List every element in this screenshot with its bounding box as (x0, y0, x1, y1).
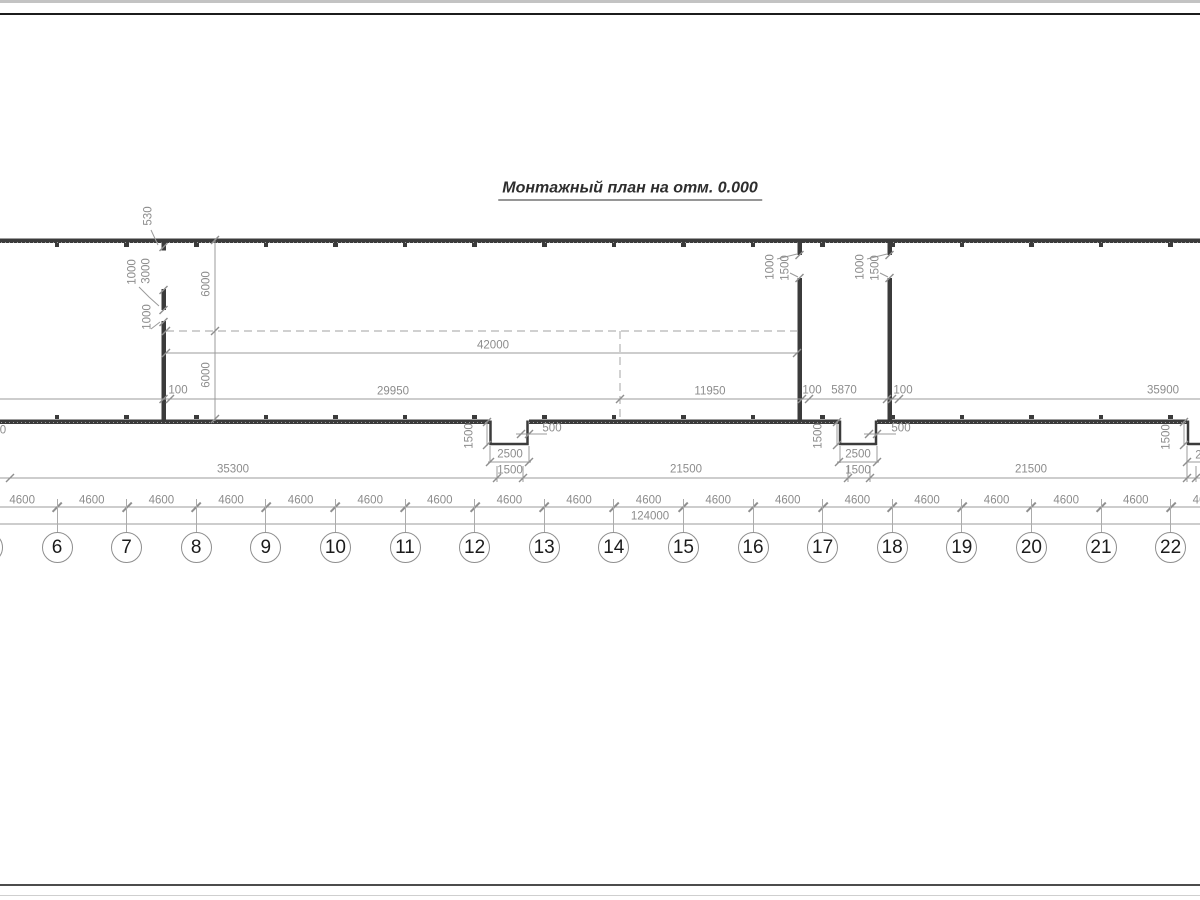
bay-dim-label: 4600 (1193, 495, 1200, 507)
wall-axis-mark (890, 415, 895, 419)
wall-axis-mark (403, 243, 408, 247)
grid-axis-bubble: 9 (250, 532, 281, 563)
dim-label: 1000 (127, 259, 139, 285)
grid-axis-number: 12 (464, 538, 485, 557)
dim-label: 2500 (1195, 450, 1200, 462)
dim-label: 35900 (1147, 385, 1179, 397)
bay-dim-label: 4600 (218, 495, 244, 507)
axis-extension-line (126, 499, 127, 532)
dim-label: 1000 (855, 254, 867, 280)
dim-label: 29950 (377, 386, 409, 398)
grid-axis-number: 17 (812, 538, 833, 557)
axis-extension-line (405, 499, 406, 532)
dim-label: 1500 (780, 255, 792, 281)
wall-axis-mark (124, 243, 129, 247)
wall-axis-mark (681, 415, 686, 419)
wall-axis-mark (960, 415, 965, 419)
grid-axis-bubble: 10 (320, 532, 351, 563)
grid-axis-number: 16 (742, 538, 763, 557)
dimension-lines (0, 230, 1200, 524)
axis-extension-line (265, 499, 266, 532)
grid-axis-bubble: 8 (181, 532, 212, 563)
wall-axis-mark (264, 243, 269, 247)
axis-extension-line (753, 499, 754, 532)
grid-axis-number: 7 (121, 538, 132, 557)
wall-axis-mark (1168, 415, 1173, 419)
wall-axis-mark (1168, 243, 1173, 247)
dim-label: 6000 (201, 362, 213, 388)
axis-extension-line (892, 499, 893, 532)
grid-axis-bubble: 16 (738, 532, 769, 563)
grid-axis-bubble: 17 (807, 532, 838, 563)
grid-axis-number: 14 (603, 538, 624, 557)
dim-label: 1500 (1161, 424, 1173, 450)
grid-axis-number: 20 (1021, 538, 1042, 557)
axis-extension-line (683, 499, 684, 532)
wall-axis-mark (751, 243, 756, 247)
bay-dim-label: 4600 (427, 495, 453, 507)
wall-axis-mark (751, 415, 756, 419)
wall-axis-mark (333, 415, 338, 419)
dim-label: 1500 (813, 423, 825, 449)
grid-axis-number: 21 (1090, 538, 1111, 557)
grid-axis-number: 9 (261, 538, 272, 557)
axis-extension-line (822, 499, 823, 532)
bay-dim-label: 4600 (357, 495, 383, 507)
grid-axis-number: 15 (673, 538, 694, 557)
dim-label: 1500 (870, 255, 882, 281)
wall-axis-mark (1029, 415, 1034, 419)
wall-axis-mark (403, 415, 408, 419)
axis-extension-line (961, 499, 962, 532)
axis-extension-line (196, 499, 197, 532)
dim-label: 1000 (765, 254, 777, 280)
wall-axis-mark (333, 243, 338, 247)
drawing-sheet: Монтажный план на отм. 0.000 (0, 0, 1200, 900)
grid-axis-bubble: 7 (111, 532, 142, 563)
bay-dim-label: 4600 (1053, 495, 1079, 507)
grid-axis-number: 8 (191, 538, 202, 557)
dim-label: 2500 (497, 449, 523, 461)
dim-label: 500 (542, 423, 561, 435)
grid-axis-bubble: 19 (946, 532, 977, 563)
axis-extension-line (1031, 499, 1032, 532)
bay-dim-label: 4600 (9, 495, 35, 507)
wall-axis-mark (542, 243, 547, 247)
pit-notches (491, 421, 1200, 445)
dim-label: 100 (168, 385, 187, 397)
axis-extension-line (544, 499, 545, 532)
bay-dim-label: 4600 (566, 495, 592, 507)
dim-label: 35300 (217, 464, 249, 476)
wall-axis-mark (890, 243, 895, 247)
dim-label: 3000 (141, 258, 153, 284)
axis-extension-line (1101, 499, 1102, 532)
bay-dim-label: 4600 (79, 495, 105, 507)
dim-label: 124000 (631, 511, 669, 523)
axis-extension-line (613, 499, 614, 532)
grid-axis-bubble: 11 (390, 532, 421, 563)
dim-label: 21500 (1015, 464, 1047, 476)
wall-axis-mark (194, 243, 199, 247)
wall-axis-mark (1029, 243, 1034, 247)
grid-axis-bubble: 18 (877, 532, 908, 563)
dim-label: 21500 (670, 464, 702, 476)
grid-axis-number: 18 (882, 538, 903, 557)
wall-axis-mark (612, 243, 617, 247)
bay-dim-label: 4600 (497, 495, 523, 507)
bay-dim-label: 4600 (1123, 495, 1149, 507)
bay-dim-label: 4600 (984, 495, 1010, 507)
wall-axis-mark (1099, 243, 1104, 247)
dim-label: 100 (802, 385, 821, 397)
wall-axis-mark (264, 415, 269, 419)
dimension-ticks (6, 236, 1200, 482)
dim-label: 5870 (831, 385, 857, 397)
wall-axis-mark (1099, 415, 1104, 419)
wall-axis-mark (55, 415, 60, 419)
dim-label: 1500 (845, 465, 871, 477)
dim-label: 1500 (464, 423, 476, 449)
wall-axis-mark (960, 243, 965, 247)
dim-label: 6000 (201, 271, 213, 297)
wall-axis-mark (472, 243, 477, 247)
dim-label: 11950 (694, 386, 725, 398)
dim-label: 500 (891, 423, 910, 435)
dim-label: 0 (0, 425, 6, 437)
grid-axis-bubble: 12 (459, 532, 490, 563)
dim-label: 1000 (142, 304, 154, 330)
axis-extension-line (335, 499, 336, 532)
bay-dim-label: 4600 (705, 495, 731, 507)
grid-axis-bubble: 15 (668, 532, 699, 563)
grid-axis-bubble: 20 (1016, 532, 1047, 563)
bay-dim-label: 4600 (775, 495, 801, 507)
dim-label: 530 (143, 206, 155, 225)
bay-dim-label: 4600 (636, 495, 662, 507)
plan-linework (0, 0, 1200, 900)
grid-axis-bubble: 6 (42, 532, 73, 563)
dim-label: 42000 (477, 340, 509, 352)
bay-dim-label: 4600 (149, 495, 175, 507)
wall-axis-mark (820, 415, 825, 419)
wall-axis-mark (472, 415, 477, 419)
grid-axis-number: 19 (951, 538, 972, 557)
dim-label: 100 (893, 385, 912, 397)
dim-label: 2500 (845, 449, 871, 461)
grid-axis-bubble: 22 (1155, 532, 1186, 563)
grid-axis-bubble: 21 (1086, 532, 1117, 563)
grid-axis-number: 22 (1160, 538, 1181, 557)
dim-label: 1500 (497, 465, 523, 477)
grid-axis-bubble: 13 (529, 532, 560, 563)
axis-extension-line (1170, 499, 1171, 532)
wall-axis-mark (820, 243, 825, 247)
bay-dim-label: 4600 (288, 495, 314, 507)
wall-axis-mark (194, 415, 199, 419)
grid-axis-bubble: 14 (598, 532, 629, 563)
grid-axis-number: 6 (52, 538, 63, 557)
axis-extension-line (474, 499, 475, 532)
wall-axis-mark (124, 415, 129, 419)
wall-axis-mark (681, 243, 686, 247)
bay-dim-label: 4600 (845, 495, 871, 507)
wall-axis-mark (612, 415, 617, 419)
grid-axis-number: 13 (534, 538, 555, 557)
axis-extension-line (57, 499, 58, 532)
wall-axis-mark (55, 243, 60, 247)
bay-dim-label: 4600 (914, 495, 940, 507)
grid-axis-number: 10 (325, 538, 346, 557)
wall-axis-mark (542, 415, 547, 419)
grid-axis-number: 11 (395, 538, 415, 557)
